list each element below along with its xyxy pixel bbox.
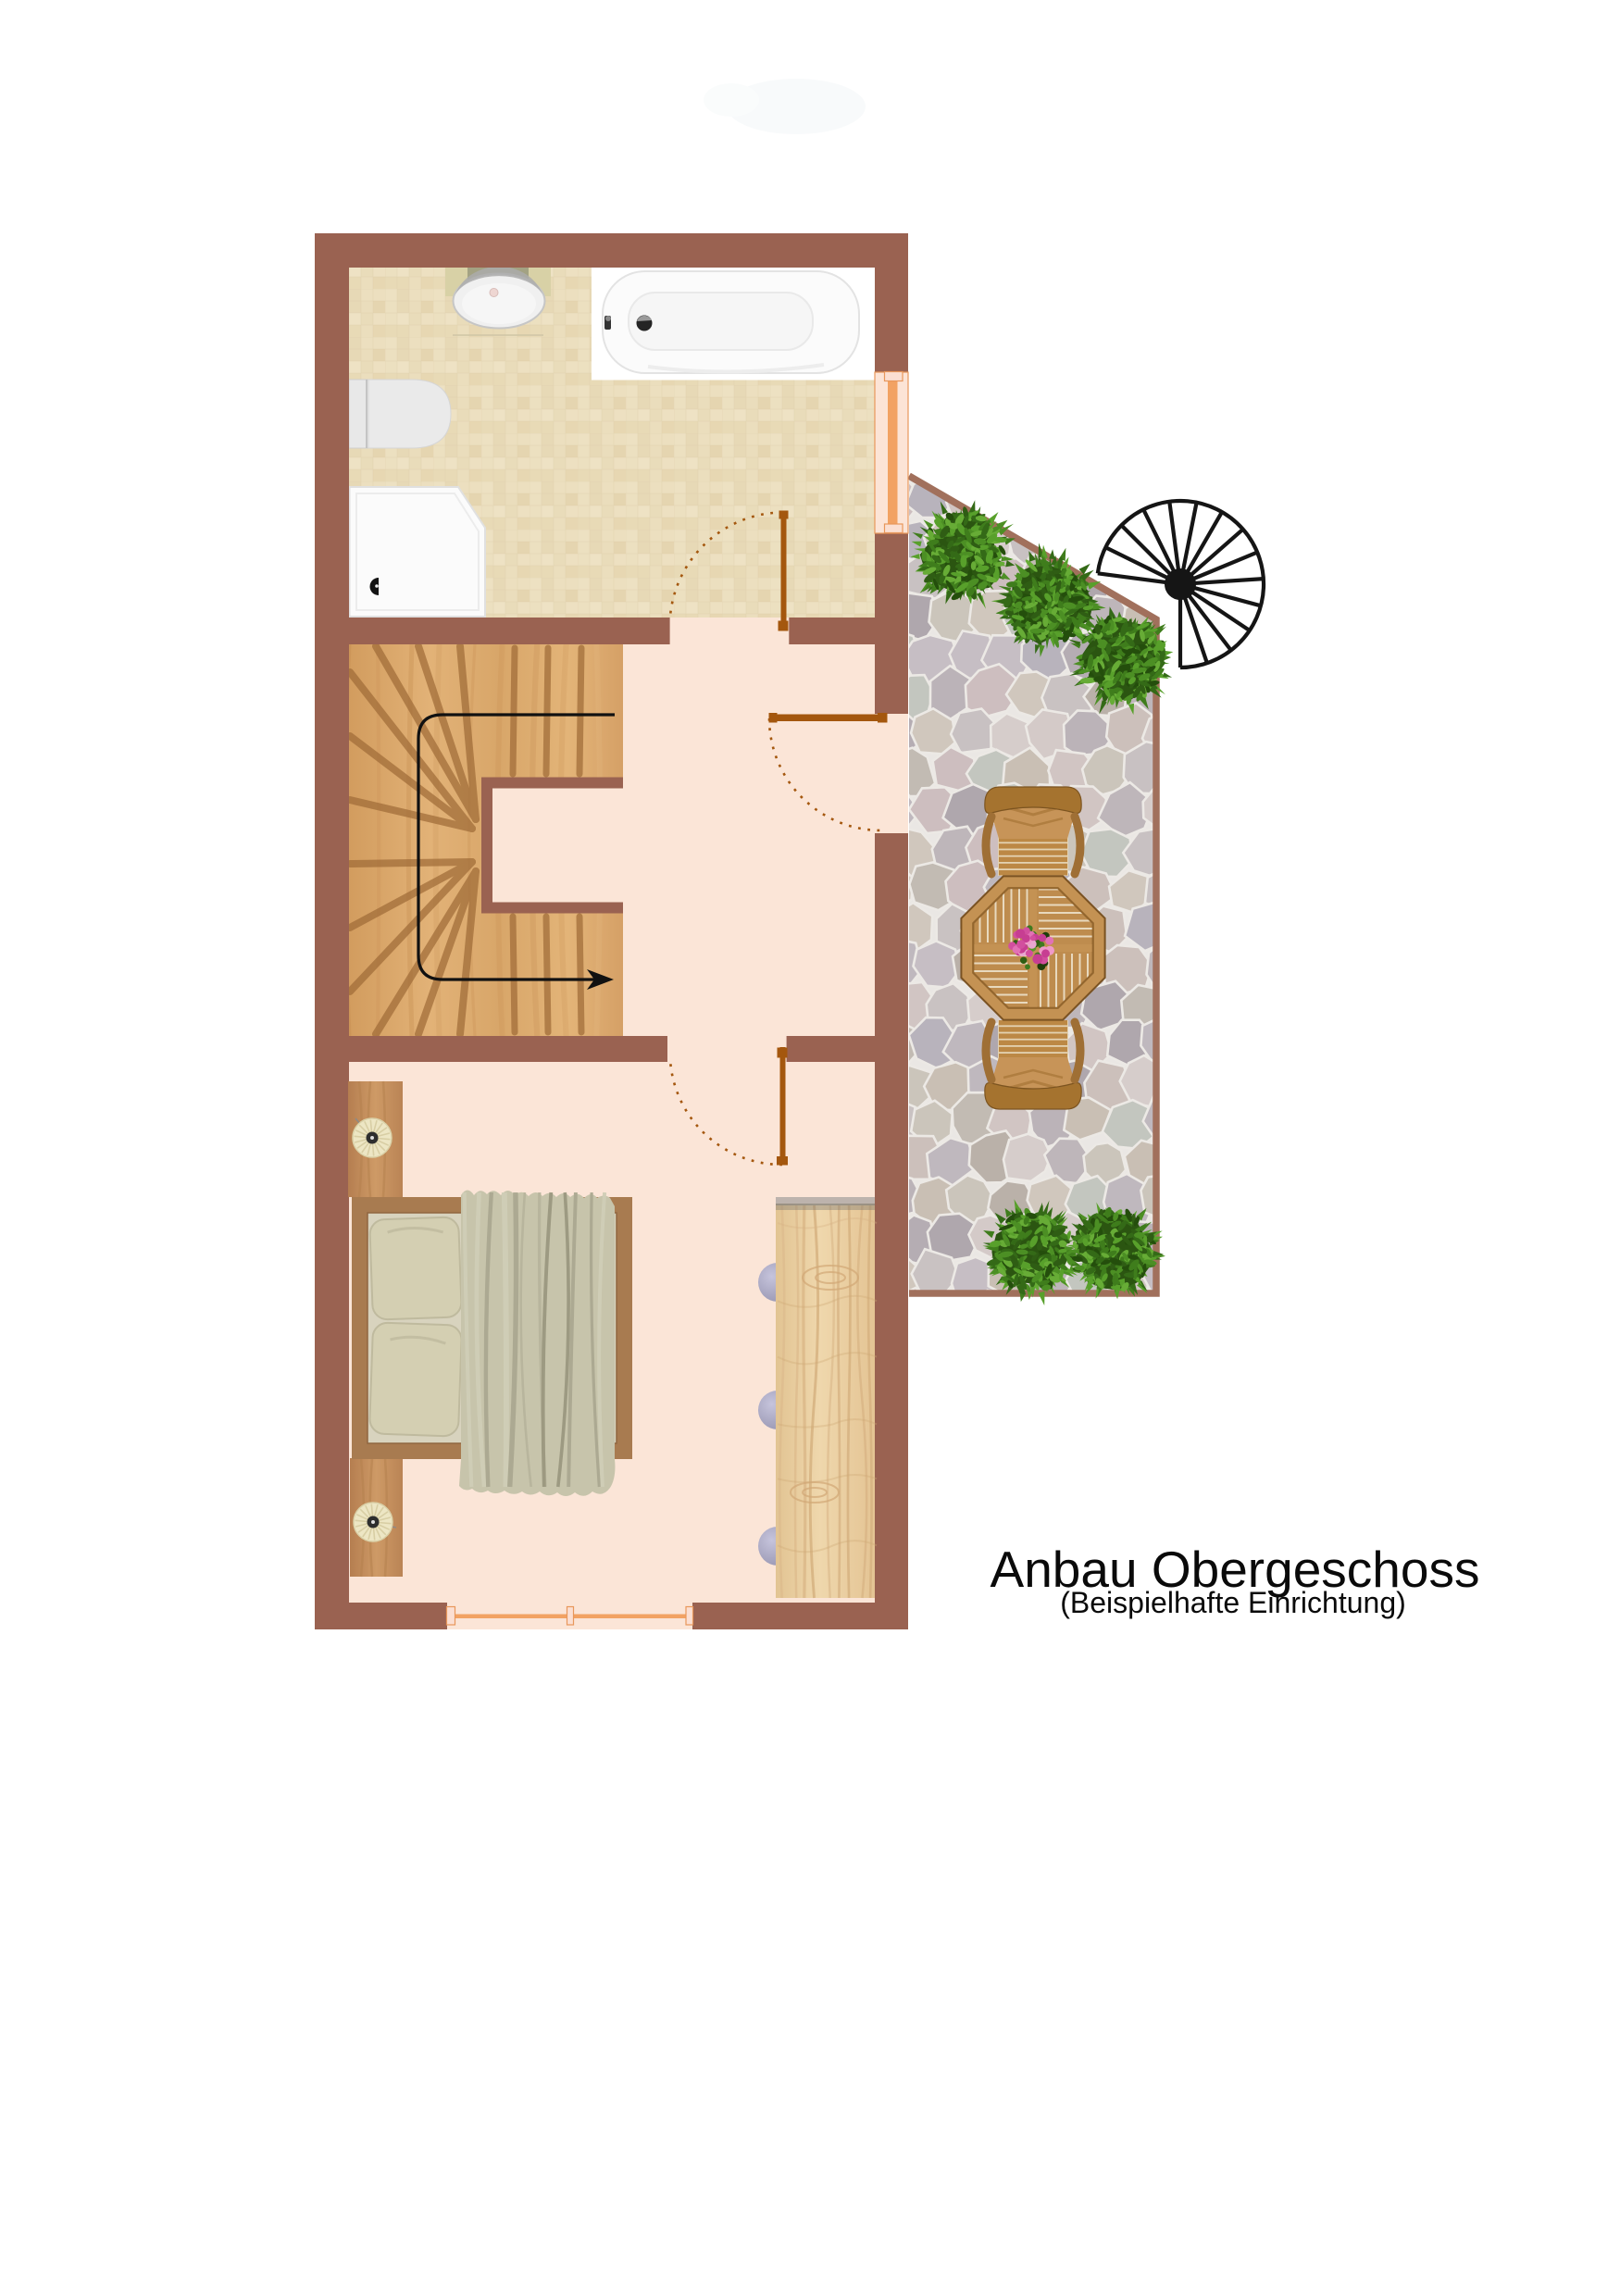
svg-text:(Beispielhafte Einrichtung): (Beispielhafte Einrichtung) — [1060, 1586, 1406, 1619]
